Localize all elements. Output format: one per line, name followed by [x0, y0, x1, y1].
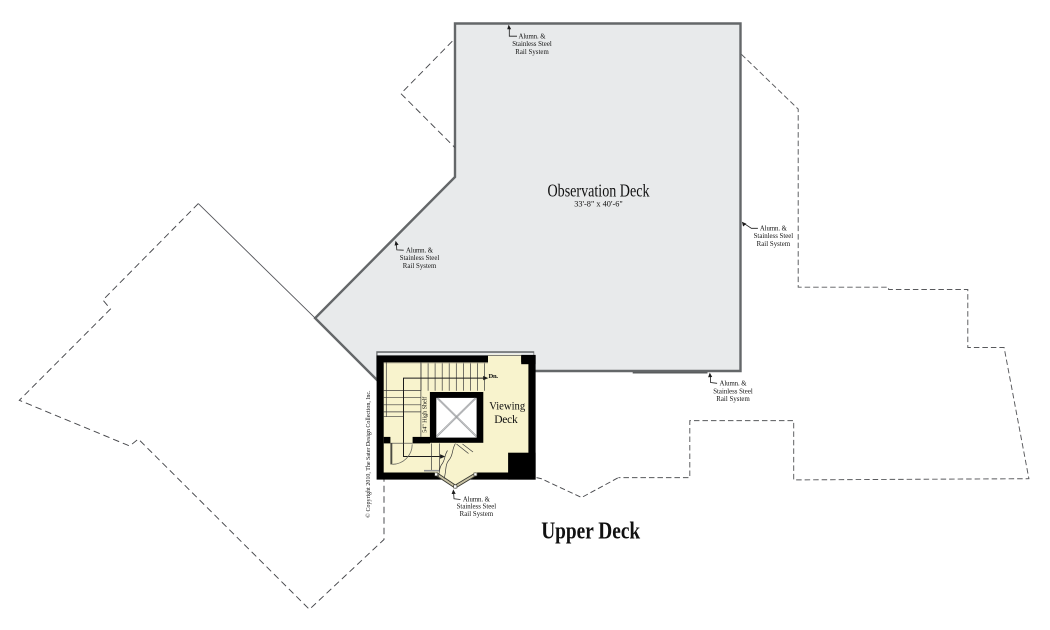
svg-text:33'-8" x 40'-6": 33'-8" x 40'-6" [574, 200, 623, 209]
svg-text:Alumn. &: Alumn. & [519, 34, 547, 41]
svg-text:Dn.: Dn. [489, 373, 499, 380]
svg-text:Stainless Steel: Stainless Steel [512, 41, 552, 48]
svg-text:Stainless Steel: Stainless Steel [400, 255, 440, 262]
svg-text:Rail System: Rail System [757, 241, 791, 248]
svg-text:Alumn. &: Alumn. & [463, 496, 491, 503]
svg-text:Upper Deck: Upper Deck [541, 519, 641, 545]
svg-text:Rail System: Rail System [515, 49, 549, 56]
svg-text:Rail System: Rail System [716, 396, 750, 403]
svg-text:Alumn. &: Alumn. & [760, 225, 788, 232]
svg-text:Stainless Steel: Stainless Steel [457, 504, 497, 511]
svg-text:Alumn. &: Alumn. & [720, 381, 748, 388]
svg-text:Alumn. &: Alumn. & [406, 247, 434, 254]
svg-text:Rail System: Rail System [403, 263, 437, 270]
svg-text:Stainless Steel: Stainless Steel [713, 388, 753, 395]
svg-text:Stainless Steel: Stainless Steel [754, 233, 794, 240]
svg-text:© Copyright 2010, The Sater De: © Copyright 2010, The Sater Design Colle… [365, 390, 372, 518]
svg-text:Deck: Deck [494, 414, 518, 426]
svg-text:Rail System: Rail System [460, 511, 494, 518]
svg-text:54" High Shelf: 54" High Shelf [422, 396, 429, 433]
svg-text:Viewing: Viewing [489, 401, 525, 413]
svg-text:Observation Deck: Observation Deck [548, 181, 651, 201]
